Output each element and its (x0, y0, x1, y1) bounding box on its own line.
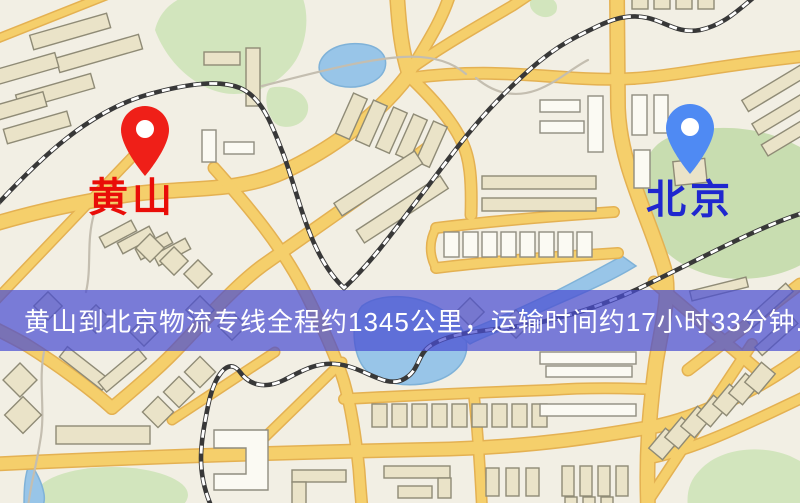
origin-label: 黄山 (88, 178, 176, 218)
destination-pin[interactable] (666, 104, 714, 174)
destination-label: 北京 (646, 180, 734, 220)
map-image (0, 0, 800, 503)
route-info-banner: 黄山到北京物流专线全程约1345公里，运输时间约17小时33分钟. (0, 290, 800, 351)
logistics-map: 黄山 北京 黄山到北京物流专线全程约1345公里，运输时间约17小时33分钟. (0, 0, 800, 503)
map-pin-icon (121, 106, 169, 176)
route-info-text: 黄山到北京物流专线全程约1345公里，运输时间约17小时33分钟. (24, 302, 800, 339)
map-pin-icon (666, 104, 714, 174)
origin-pin[interactable] (121, 106, 169, 176)
